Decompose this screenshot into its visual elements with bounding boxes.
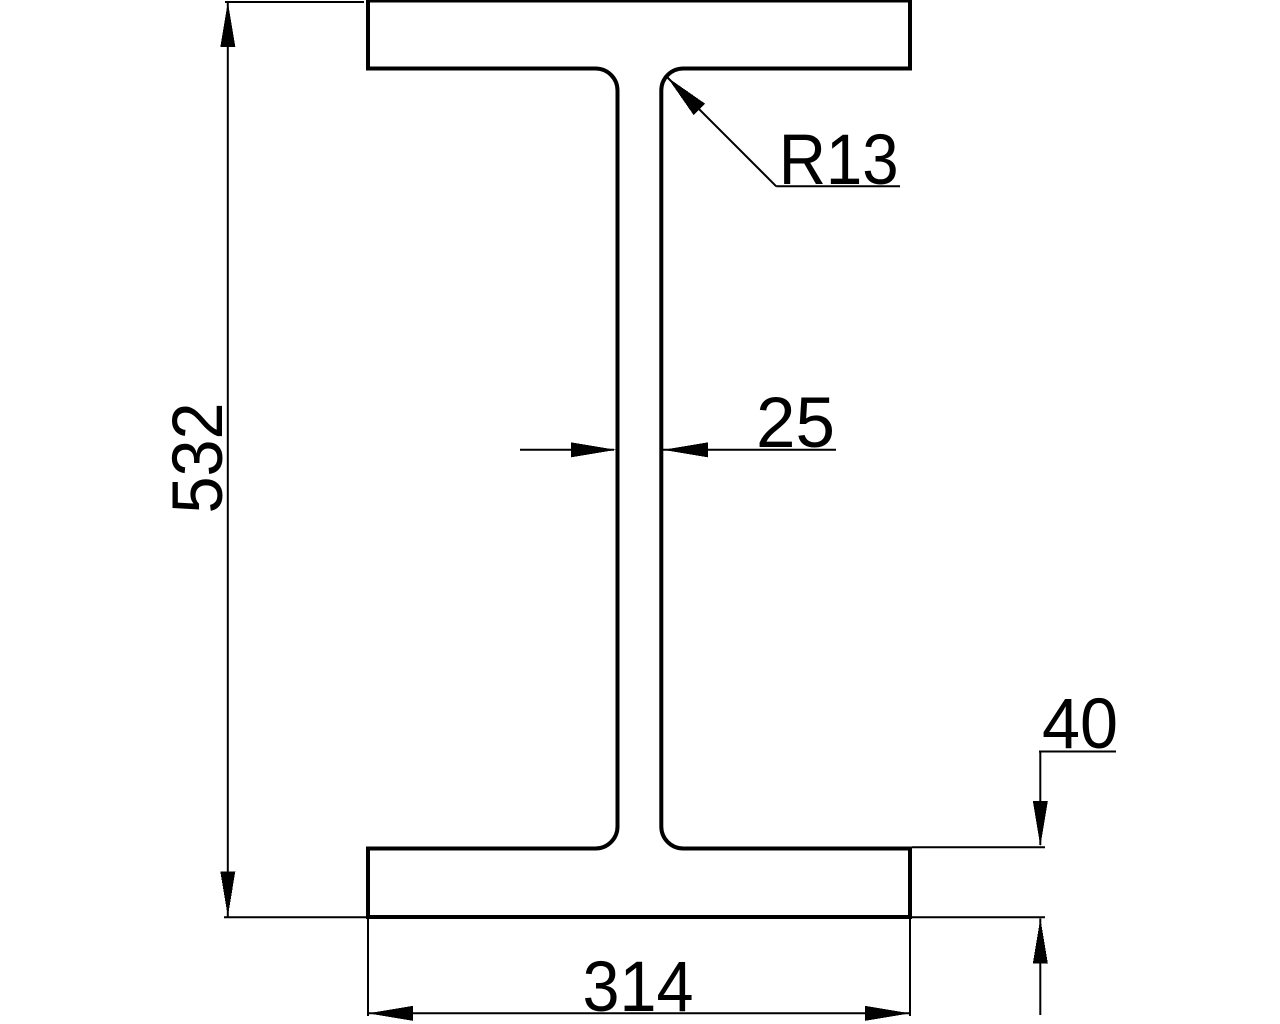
svg-text:532: 532 xyxy=(159,403,238,514)
svg-text:314: 314 xyxy=(583,948,694,1024)
svg-text:25: 25 xyxy=(756,384,835,463)
svg-text:R13: R13 xyxy=(779,121,899,200)
